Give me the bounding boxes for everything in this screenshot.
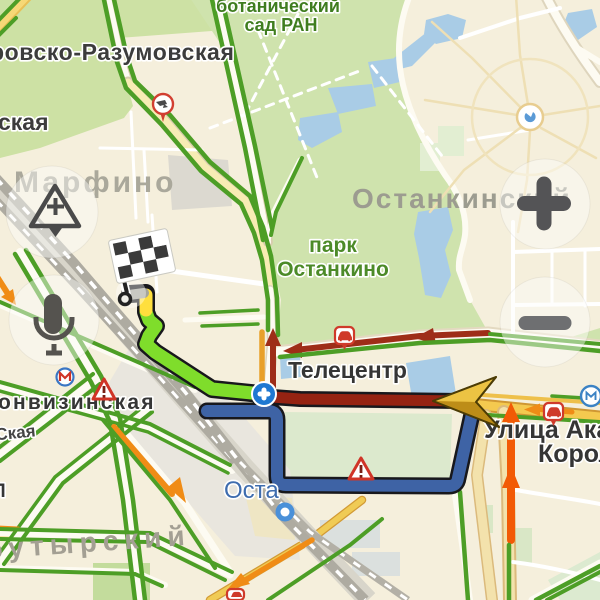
svg-text:сад РАН: сад РАН (244, 15, 317, 35)
svg-text:парк: парк (309, 234, 357, 257)
svg-text:ровско-Разумовская: ровско-Разумовская (0, 39, 234, 65)
svg-text:онвизинская: онвизинская (0, 391, 156, 414)
svg-text:Королё: Королё (538, 440, 600, 468)
svg-text:Оста: Оста (224, 477, 279, 504)
svg-text:П: П (0, 481, 6, 502)
svg-text:Останкино: Останкино (277, 258, 389, 281)
svg-text:Телецентр: Телецентр (288, 357, 407, 383)
svg-text:ботанический: ботанический (216, 0, 340, 16)
svg-text:ская: ская (0, 109, 49, 135)
